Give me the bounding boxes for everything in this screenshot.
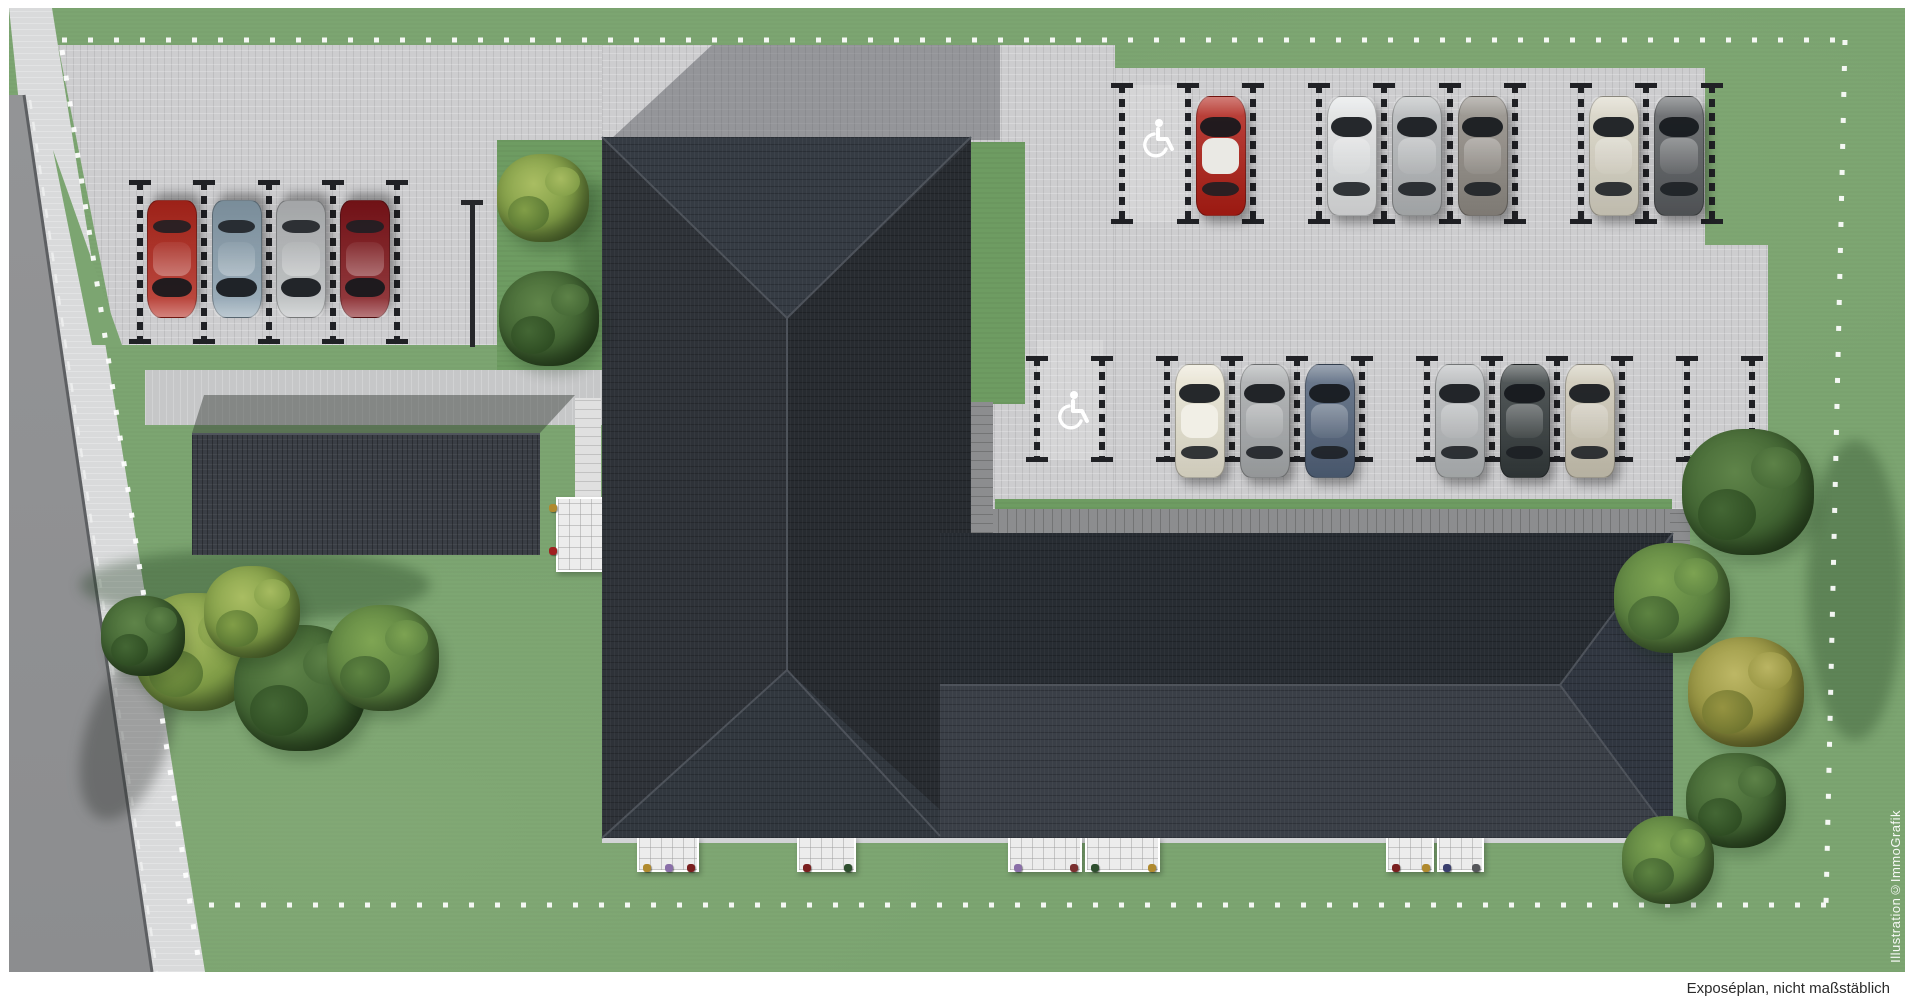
car-windshield [1331,117,1371,137]
parking-divider-cap [1111,83,1133,88]
car [1565,364,1615,478]
tree-foliage [1702,690,1753,734]
car-rear-window [282,220,319,234]
accessible-parking-marking [1135,118,1175,164]
car-rear-window [1181,446,1218,459]
car-hood-shine [1306,365,1354,383]
tree-foliage [1748,652,1792,689]
car-windshield [152,278,192,298]
parking-divider-cap [1504,219,1526,224]
car-roof [1595,138,1632,173]
parking-divider-cap [1373,83,1395,88]
parking-divider [1424,358,1430,460]
car-roof [1202,138,1239,173]
parking-divider-cap [1111,219,1133,224]
parking-divider [1250,85,1256,222]
flower-pot [549,504,557,512]
car-roof [1398,138,1435,173]
car [1327,96,1377,216]
car-hood-shine [1436,365,1484,383]
tree-foliage [551,284,589,316]
parking-divider-cap [1308,83,1330,88]
parking-divider-cap [1177,83,1199,88]
tree-foliage [1751,447,1801,490]
car-rear-window [1398,182,1435,196]
tree [327,605,439,711]
tree-foliage [1674,558,1718,595]
parking-divider [1316,85,1322,222]
parking-divider [1294,358,1300,460]
parking-divider-cap [1026,356,1048,361]
car-rear-window [1333,182,1370,196]
building-west-wing-roof [602,137,971,838]
parking-divider [1578,85,1584,222]
wheelchair-icon [1050,390,1090,436]
tree-foliage [508,196,548,231]
parking-divider-cap [1570,219,1592,224]
car [212,200,262,318]
parking-divider-cap [1676,356,1698,361]
tree-shadow [1807,440,1903,740]
parking-divider-cap [1026,457,1048,462]
fence-cap [461,200,483,205]
car-hood-shine [1655,97,1703,116]
terrace-entrance-west [556,497,604,572]
parking-divider [1359,358,1365,460]
parking-divider-cap [1351,356,1373,361]
car-rear-window [346,220,383,234]
parking-divider-cap [1611,356,1633,361]
car-hood-shine [1197,97,1245,116]
flower-pot [665,864,673,872]
frame-right [1905,0,1920,1005]
car-hood-shine [1393,97,1441,116]
parking-divider-cap [1091,356,1113,361]
tree [1688,637,1804,747]
flower-pot [1148,864,1156,872]
car-hood-shine [1501,365,1549,383]
plan-caption: Exposéplan, nicht maßstäblich [1687,980,1890,997]
car-hood-shine [1459,97,1507,116]
entrance-walkway [575,398,601,500]
parking-divider-cap [1242,83,1264,88]
accessible-parking-marking [1050,390,1090,436]
parking-divider [137,182,143,342]
car-windshield [1504,384,1544,403]
frame-top [0,0,1920,8]
parking-divider-cap [1635,83,1657,88]
car-rear-window [1311,446,1348,459]
tree-foliage [145,607,177,634]
car-roof [1506,404,1543,438]
car-roof [1333,138,1370,173]
car [1589,96,1639,216]
parking-divider-cap [1701,219,1723,224]
car [1196,96,1246,216]
frame-left [0,0,9,1005]
car-roof [282,242,319,277]
car-rear-window [1660,182,1697,196]
car-roof [218,242,255,277]
parking-divider-cap [1635,219,1657,224]
parking-divider-cap [129,339,151,344]
tree [204,566,300,657]
car-roof [1441,404,1478,438]
car [340,200,390,318]
parking-divider [1185,85,1191,222]
car-hood-shine [1590,97,1638,116]
tree-foliage [385,620,428,656]
car-rear-window [153,220,190,234]
car [1435,364,1485,478]
parking-divider-cap [322,180,344,185]
parking-divider-cap [386,339,408,344]
parking-divider [1619,358,1625,460]
flower-pot [687,864,695,872]
car-hood-shine [148,298,196,317]
car-windshield [216,278,256,298]
parking-divider [1119,85,1125,222]
tree-foliage [1738,766,1776,798]
carport-shadow [192,395,575,433]
parking-divider [201,182,207,342]
tree [497,154,589,241]
parking-divider-cap [1177,219,1199,224]
parking-divider-cap [1286,356,1308,361]
flower-pot [549,547,557,555]
tree-foliage [250,685,308,735]
parking-divider [1447,85,1453,222]
parking-divider-cap [1156,356,1178,361]
parking-divider-cap [1570,83,1592,88]
car-roof [1311,404,1348,438]
car-windshield [1309,384,1349,403]
tree-foliage [340,656,389,699]
tree-foliage [1628,596,1679,640]
car-rear-window [1202,182,1239,196]
flower-pot [643,864,651,872]
parking-divider-cap [1546,356,1568,361]
parking-divider-cap [1439,83,1461,88]
retaining-wall-west [971,402,993,533]
car-windshield [1397,117,1437,137]
flower-pot [803,864,811,872]
car-roof [346,242,383,277]
parking-divider [1099,358,1105,460]
lawn-strip-east-of-building [971,142,1025,404]
car-windshield [1659,117,1699,137]
car [1500,364,1550,478]
car-windshield [281,278,321,298]
car-hood-shine [277,298,325,317]
parking-divider-cap [386,180,408,185]
car-roof [1246,404,1283,438]
roof-texture [940,533,1673,838]
parking-divider [330,182,336,342]
car-windshield [1593,117,1633,137]
parking-divider [1512,85,1518,222]
car-hood-shine [1176,365,1224,383]
flower-pot [844,864,852,872]
car-hood-shine [213,298,261,317]
parking-divider [1229,358,1235,460]
parking-divider-cap [1701,83,1723,88]
car-hood-shine [1328,97,1376,116]
parking-divider-cap [1481,356,1503,361]
frame-bottom: Exposéplan, nicht maßstäblich [0,972,1920,1005]
parking-divider [394,182,400,342]
tree [101,596,185,676]
car-windshield [345,278,385,298]
building-east-wing-roof [940,533,1673,838]
parking-divider-cap [1439,219,1461,224]
parking-divider-cap [1416,356,1438,361]
car-windshield [1179,384,1219,403]
flower-pot [1070,864,1078,872]
parking-divider-cap [1091,457,1113,462]
parking-divider [1164,358,1170,460]
flower-pot [1443,864,1451,872]
parking-divider-cap [193,180,215,185]
parking-divider-cap [1308,219,1330,224]
car-rear-window [1246,446,1283,459]
car [1458,96,1508,216]
car-hood-shine [341,298,389,317]
parking-divider-cap [1741,356,1763,361]
car [147,200,197,318]
parking-divider [1709,85,1715,222]
tree-foliage [1633,858,1673,893]
tree [1614,543,1730,653]
parking-divider-cap [258,339,280,344]
tree-foliage [216,610,258,646]
site-plan: Illustration©ImmoGrafik Exposéplan, nich… [0,0,1920,1005]
parking-divider-cap [1242,219,1264,224]
flower-pot [1091,864,1099,872]
car-roof [1660,138,1697,173]
parking-divider-cap [1221,356,1243,361]
tree-foliage [254,579,290,610]
parking-divider-cap [1504,83,1526,88]
car [276,200,326,318]
parking-divider-cap [322,339,344,344]
car-windshield [1439,384,1479,403]
car-windshield [1200,117,1240,137]
flower-pot [1392,864,1400,872]
car-roof [1464,138,1501,173]
tree [1682,429,1814,554]
car [1305,364,1355,478]
tree-foliage [511,316,555,354]
tree-foliage [1698,489,1756,539]
car-rear-window [1506,446,1543,459]
tree [499,271,599,366]
wheelchair-icon [1135,118,1175,164]
parking-divider [266,182,272,342]
parking-divider-cap [193,339,215,344]
car-rear-window [1571,446,1608,459]
car [1175,364,1225,478]
parking-divider [1034,358,1040,460]
parking-divider-cap [1373,219,1395,224]
car-rear-window [1441,446,1478,459]
tree-foliage [111,634,148,666]
car [1392,96,1442,216]
car-windshield [1244,384,1284,403]
flower-pot [1014,864,1022,872]
car [1240,364,1290,478]
car-hood-shine [1241,365,1289,383]
fence-line [470,203,475,347]
car-rear-window [1595,182,1632,196]
flower-pot [1422,864,1430,872]
carport-roof [192,433,540,555]
lawn-strip-above-wall [995,499,1672,509]
tree-foliage [1670,829,1705,859]
watermark-credit: Illustration©ImmoGrafik [1888,810,1903,963]
car-windshield [1462,117,1502,137]
car-rear-window [1464,182,1501,196]
parking-divider [1489,358,1495,460]
retaining-wall [971,509,1688,533]
car-rear-window [218,220,255,234]
parking-divider [1381,85,1387,222]
parking-divider [1684,358,1690,460]
parking-divider [1554,358,1560,460]
parking-divider-cap [129,180,151,185]
tree [1622,816,1714,903]
car-hood-shine [1566,365,1614,383]
car-windshield [1569,384,1609,403]
parking-divider [1643,85,1649,222]
car-roof [1181,404,1218,438]
parking-divider-cap [258,180,280,185]
car-roof [153,242,190,277]
car [1654,96,1704,216]
flower-pot [1472,864,1480,872]
tree-foliage [545,167,580,197]
roof-texture [602,137,971,838]
car-roof [1571,404,1608,438]
